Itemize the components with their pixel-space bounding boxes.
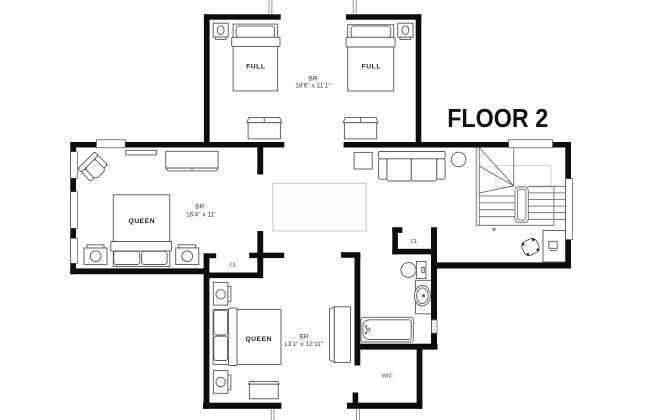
svg-text:18'6" x 11'1": 18'6" x 11'1"	[295, 82, 331, 89]
svg-text:QUEEN: QUEEN	[128, 218, 155, 225]
svg-text:13'1" x 12'11": 13'1" x 12'11"	[284, 341, 324, 348]
svg-text:BR: BR	[195, 204, 204, 211]
svg-text:FULL: FULL	[246, 64, 265, 71]
svg-text:16'4" x 11': 16'4" x 11'	[186, 212, 216, 219]
svg-text:WIC: WIC	[381, 374, 392, 380]
svg-text:FULL: FULL	[362, 64, 381, 71]
svg-text:BR: BR	[299, 333, 308, 340]
svg-text:FLOOR 2: FLOOR 2	[447, 105, 548, 133]
svg-text:CL: CL	[411, 239, 419, 245]
svg-text:QUEEN: QUEEN	[245, 336, 272, 343]
svg-text:CL: CL	[229, 263, 237, 269]
